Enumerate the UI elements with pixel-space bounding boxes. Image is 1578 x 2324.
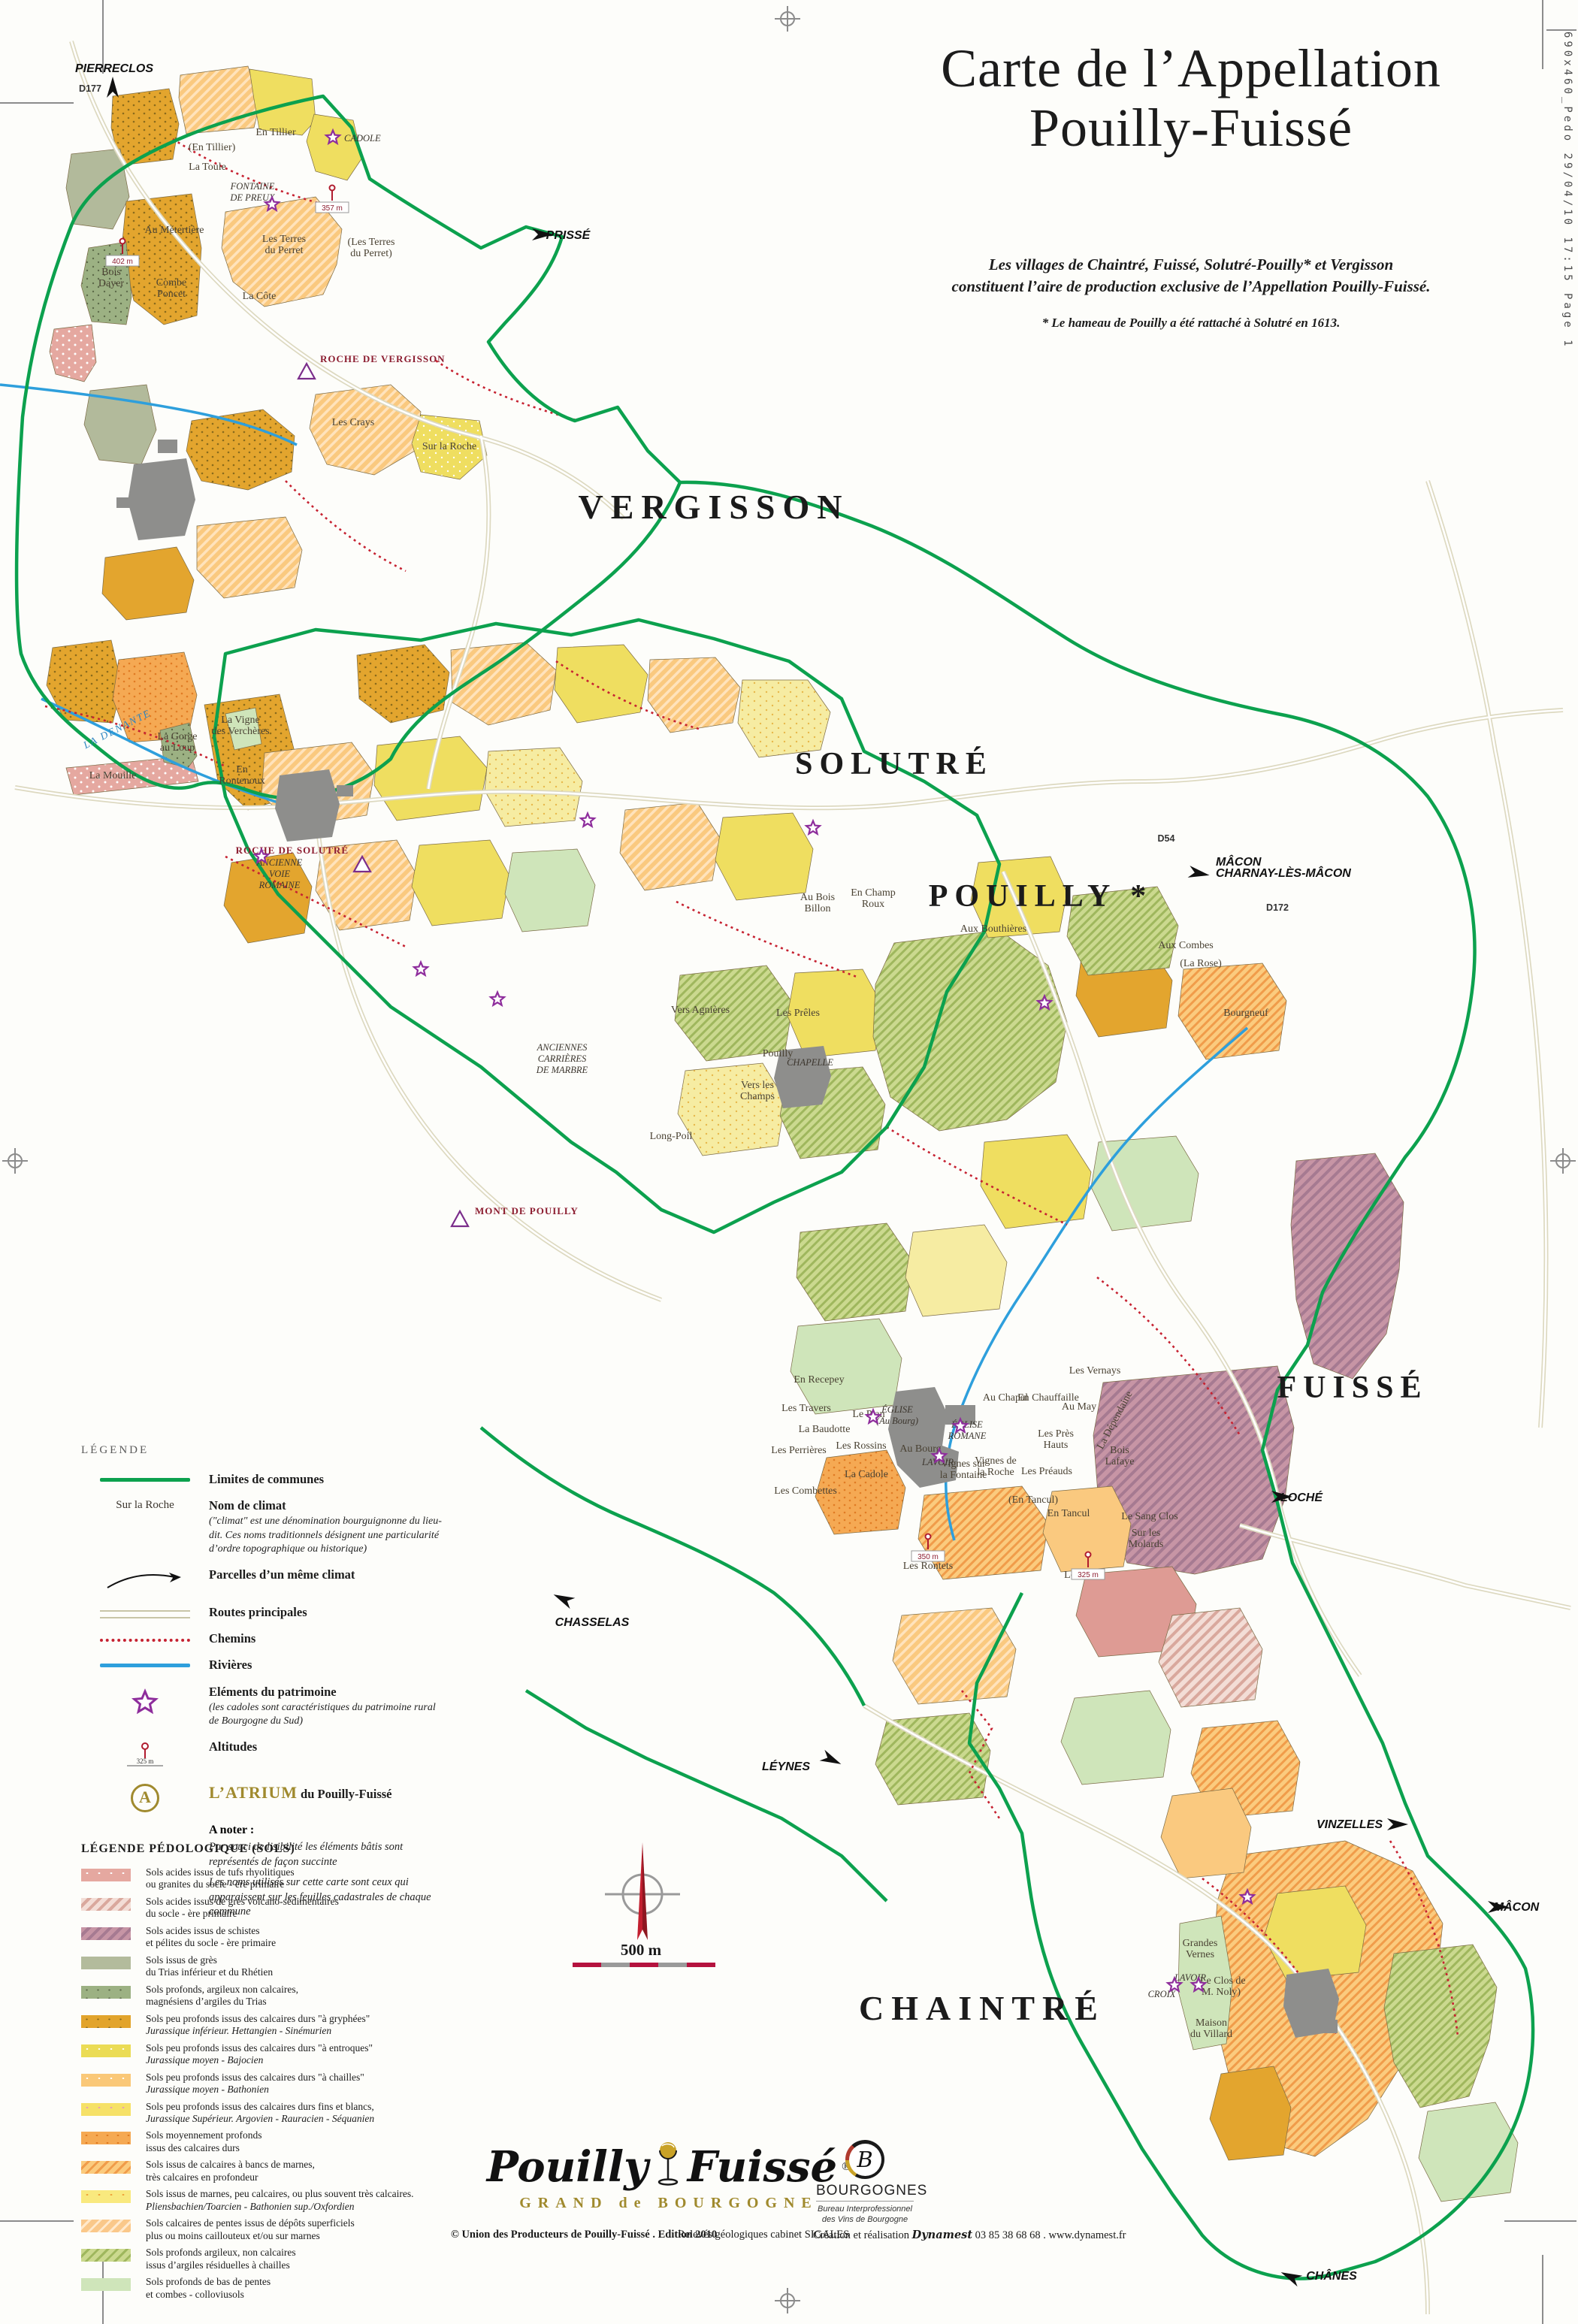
soil-description: Sols issus de calcaires à bancs de marne… [146,2159,315,2183]
altitude-marker: 357 m [316,186,349,213]
soil-description: Sols profonds, argileux non calcaires,ma… [146,1984,298,2008]
soil-swatch [81,1898,131,1911]
soil-legend-item: Sols peu profonds issus des calcaires du… [81,2042,532,2067]
climat-label: Combe [156,277,186,289]
climat-label: Rontenoux [219,775,265,787]
bivb-subtitle: Bureau Interprofessionnel des Vins de Bo… [816,2204,914,2226]
climat-label: Sur les [1132,1528,1161,1539]
soil-legend-item: Sols issus de marnes, peu calcaires, ou … [81,2188,532,2213]
credit-design-suffix: 03 85 38 68 68 . www.dynamest.fr [975,2229,1126,2241]
soil-description: Sols peu profonds issus des calcaires du… [146,2101,374,2126]
soil-swatch [81,1869,131,1881]
pouilly-fuisse-logo: Pouilly Fuissé ® GRAND de BOURGOGNE [511,2140,827,2212]
heritage-label: VOIE [269,869,290,879]
peak-triangle-icon [298,364,315,379]
climat-label: La Cadole [845,1469,888,1480]
peak-label: ROCHE DE SOLUTRÉ [236,845,349,856]
legend-symbol-star [81,1685,209,1729]
climat-label: Bois [101,267,121,278]
rivers [0,385,1247,1540]
soil-swatch [81,2190,131,2203]
destination-label: CHÂNES [1306,2268,1357,2283]
climat-label: des Verchères [211,726,269,737]
heritage-label: ANCIENNES [537,1042,588,1053]
destination-label: CHARNAY-LÈS-MÂCON [1216,866,1351,880]
climat-label: Hauts [1044,1440,1069,1451]
peak-triangle-icon [452,1211,468,1226]
village-label: VERGISSON [579,488,850,526]
pf-logo-subtitle: GRAND de BOURGOGNE [511,2195,827,2212]
heritage-label: ROMAINE [258,880,301,890]
village-label: FUISSÉ [1277,1370,1428,1405]
road-number-label: D172 [1266,902,1289,913]
heritage-label: CADOLE [344,133,381,144]
scale-bar [573,1963,715,1967]
legend-symbol-sample: Sur la Roche [81,1498,209,1556]
road-number-label: D177 [79,83,101,94]
soil-legend-item: Sols peu profonds issus des calcaires du… [81,2013,532,2038]
soil-description: Sols issus de grèsdu Trias inférieur et … [146,1954,273,1979]
soil-legend-item: Sols acides issus de grès volcano-sédime… [81,1896,532,1921]
legend-item: Chemins [81,1631,442,1646]
svg-text:325 m: 325 m [1078,1571,1099,1579]
bivb-ring-icon: B [845,2140,884,2179]
soil-legend-item: Sols profonds, argileux non calcaires,ma… [81,1984,532,2008]
heritage-star-icon [806,821,820,834]
legend-label: Parcelles d’un même climat [209,1567,442,1594]
climat-label: Les Perrières [771,1445,826,1456]
soil-description: Sols issus de marnes, peu calcaires, ou … [146,2188,414,2213]
climat-label: Dayer [98,278,125,289]
climat-label: La Mouille [89,770,137,781]
legend-item: Sur la RocheNom de climat("climat" est u… [81,1498,442,1556]
soil-legend-item: Sols acides issus de tufs rhyolitiquesou… [81,1866,532,1891]
climat-label: En Champ [851,887,896,899]
svg-text:357 m: 357 m [322,204,343,213]
map-sheet: VERGISSONSOLUTRÉPOUILLY *FUISSÉCHAINTRÉP… [0,0,1578,2324]
climat-label: Les Travers [781,1403,831,1414]
direction-arrow-icon [820,1750,844,1769]
page-title-line2: Pouilly-Fuissé [864,98,1518,158]
legend-symbol-altitude: 325 m [81,1739,209,1772]
soil-legend-item: Sols acides issus de schisteset pélites … [81,1925,532,1950]
climat-label: La Vigne [221,715,259,726]
credits-row: © Union des Producteurs de Pouilly-Fuiss… [0,2229,1578,2251]
climat-label: Lafaye [1105,1456,1135,1467]
legend-label: Altitudes [209,1739,442,1772]
bivb-letter: B [849,2144,881,2176]
svg-text:402 m: 402 m [112,258,133,266]
climat-label: Le Sang Clos [1121,1511,1177,1522]
climat-label: Aux Bouthières [960,923,1026,935]
heritage-label: CARRIÈRES [538,1053,587,1064]
climat-label: Au Métertière [145,225,204,236]
destination-label: PIERRECLOS [75,62,153,75]
climat-label: Vers Agnières [671,1005,730,1016]
svg-text:325 m: 325 m [137,1757,154,1765]
climat-label: Au May [1062,1401,1096,1413]
climat-label: M. Noly) [1202,1987,1241,1998]
soil-legend-item: Sols issus de grèsdu Trias inférieur et … [81,1954,532,1979]
legend-label: Rivières [209,1658,442,1673]
heritage-star-icon [581,814,594,827]
climat-label: La Baudotte [799,1424,851,1435]
heritage-label: ROMANE [948,1431,987,1441]
climat-label: En Tillier [255,127,296,138]
soil-swatch [81,1986,131,1999]
legend-item: Eléments du patrimoine(les cadoles sont … [81,1685,442,1729]
page-title-line1: Carte de l’Appellation [864,39,1518,98]
climat-label: (Les Terres [348,237,395,248]
legend-label: Limites de communes [209,1472,442,1487]
legend-symbol-line-green [81,1472,209,1487]
peak-label: MONT DE POUILLY [475,1205,579,1216]
peak-label: ROCHE DE VERGISSON [320,353,446,364]
soil-swatch [81,1927,131,1940]
climat-label: Les Rontets [903,1561,954,1572]
credit-design-brand: Dynamest [912,2229,972,2241]
climat-label: Les Terres [262,234,306,245]
village-label: SOLUTRÉ [795,746,993,781]
climat-label: au Loup [160,742,195,754]
title-block: Carte de l’Appellation Pouilly-Fuissé [864,39,1518,158]
destination-label: VINZELLES [1317,1818,1383,1831]
climat-label: La Gorge [158,731,198,742]
intro-line1: Les villages de Chaintré, Fuissé, Solutr… [887,254,1495,276]
legend-item: AL’ATRIUM du Pouilly-Fuissé [81,1783,442,1812]
climat-label: Champs [740,1091,775,1102]
climat-label: Vers les [741,1080,774,1091]
climat-label: En Tancul [1047,1508,1090,1519]
legend-symbol-dots-red [81,1631,209,1646]
climat-label: Bourgneuf [1223,1008,1268,1019]
climat-label: En [236,764,248,775]
road-number-label: D54 [1158,833,1175,844]
soil-description: Sols peu profonds issus des calcaires du… [146,2013,370,2038]
climat-label: En Recepey [794,1374,844,1386]
soil-swatch [81,2161,131,2174]
legend-label: Routes principales [209,1605,442,1620]
legend-symbol-road [81,1605,209,1620]
climat-label: Roux [862,899,884,910]
climat-label: Les Près [1038,1428,1074,1440]
climat-label: Les Prêles [776,1008,820,1019]
credit-design: Création et réalisation Dynamest 03 85 3… [813,2229,1126,2242]
soil-swatch [81,1957,131,1969]
climat-label: du Perret) [350,248,392,259]
climat-label: La Toule [189,162,226,173]
legend-note-title: A noter : [209,1824,442,1837]
legend-item: Limites de communes [81,1472,442,1487]
climat-label: Les Combettes [774,1485,837,1497]
legend-label: L’ATRIUM du Pouilly-Fuissé [209,1783,442,1812]
direction-arrow-icon [107,77,119,98]
soil-description: Sols moyennement profondsissus des calca… [146,2129,262,2154]
intro-line2: constituent l’aire de production exclusi… [887,276,1495,298]
legend-title: LÉGENDE [81,1444,442,1457]
climat-label: Vignes de [975,1455,1017,1467]
soil-swatch [81,2278,131,2291]
bivb-logo: B BOURGOGNES Bureau Interprofessionnel d… [816,2140,914,2226]
climat-label: du Villard [1190,2029,1232,2040]
legend-symbol-arrow [81,1567,209,1594]
soil-swatch [81,2103,131,2116]
heritage-label: ÉGLISE [881,1404,913,1415]
soil-legend-item: Sols moyennement profondsissus des calca… [81,2129,532,2154]
soil-legend-item: Sols peu profonds issus des calcaires du… [81,2072,532,2096]
heritage-label: DE MARBRE [536,1065,588,1075]
legend-item: 325 mAltitudes [81,1739,442,1772]
soil-description: Sols acides issus de grès volcano-sédime… [146,1896,339,1921]
soil-swatch [81,2015,131,2028]
soil-swatch [81,2074,131,2087]
village-label: POUILLY * [929,879,1153,914]
destination-label: LÉYNES [762,1759,810,1773]
direction-arrow-icon [551,1589,575,1609]
legend-rows: Limites de communesSur la RocheNom de cl… [81,1472,442,1812]
soil-description: Sols profonds de bas de penteset combes … [146,2276,271,2301]
direction-arrow-icon [1387,1818,1408,1830]
climat-label: Vernes [1186,1949,1214,1960]
soil-legend-title: LÉGENDE PÉDOLOGIQUE (SOLS) [81,1842,532,1856]
heritage-label: (Au Bourg) [876,1416,918,1426]
heritage-label: FONTAINE [230,181,275,192]
climat-label: du Perret [265,245,304,256]
soil-legend-item: Sols peu profonds issus des calcaires du… [81,2101,532,2126]
climat-label: Au Bois [800,892,835,903]
climat-label: (La Rose) [1180,958,1222,969]
pf-logo-word2: Fuissé [688,2142,837,2192]
climat-label: Les Crays [332,417,374,428]
wine-glass-icon [653,2140,683,2193]
climat-label: Long-Poil [650,1131,693,1142]
climat-label: Poncet [157,289,186,300]
climat-label: Maison [1196,2017,1227,2029]
bivb-sub2: des Vins de Bourgogne [816,2214,914,2225]
legend-label: Chemins [209,1631,442,1646]
bivb-sub1: Bureau Interprofessionnel [816,2204,914,2214]
legend-label: Nom de climat("climat" est une dénominat… [209,1498,442,1556]
legend-label: Eléments du patrimoine(les cadoles sont … [209,1685,442,1729]
village-label: CHAINTRÉ [859,1989,1105,2027]
soil-swatch [81,2044,131,2057]
legend-item: Rivières [81,1658,442,1673]
legend-symbol-atrium: A [81,1783,209,1812]
heritage-label: LAVOIR [1174,1972,1206,1983]
direction-arrow-icon [1188,866,1211,881]
climat-label: Les Vernays [1069,1365,1121,1377]
climat-label: Les Préauds [1021,1466,1072,1477]
climat-label: (En Tancul) [1008,1494,1058,1506]
climat-label: Les Rossins [836,1440,886,1452]
legend-symbol-line-blue [81,1658,209,1673]
pf-logo-word1: Pouilly [487,2142,648,2192]
heritage-label: CHAPELLE [787,1057,833,1068]
legend-item: Routes principales [81,1605,442,1620]
climat-label: (En Tillier) [189,142,236,153]
climat-label: Billon [804,903,830,914]
intro-text: Les villages de Chaintré, Fuissé, Solutr… [887,254,1495,298]
destination-label: PRISSÉ [546,228,591,242]
soil-description: Sols acides issus de tufs rhyolitiquesou… [146,1866,295,1891]
climat-label: La Côte [243,291,277,302]
soil-legend-item: Sols issus de calcaires à bancs de marne… [81,2159,532,2183]
intro-footnote: * Le hameau de Pouilly a été rattaché à … [887,316,1495,331]
legend-item: Parcelles d’un même climat [81,1567,442,1594]
climat-label: la Roche [977,1467,1014,1478]
credit-design-prefix: Création et réalisation [813,2229,909,2241]
climat-label: Aux Combes [1158,940,1214,951]
compass-rose [605,1842,680,1940]
soil-description: Sols peu profonds issus des calcaires du… [146,2042,373,2067]
scale-label: 500 m [621,1941,662,1959]
soil-description: Sols peu profonds issus des calcaires du… [146,2072,364,2096]
soil-swatch [81,2132,131,2144]
print-annotation: 690x460_Pedo 29/04/10 17:15 Page 1 [1561,32,1573,349]
soil-description: Sols acides issus de schisteset pélites … [146,1925,276,1950]
heritage-star-icon [414,963,428,975]
climat-label: Bois [1110,1445,1129,1456]
soil-legend-item: Sols profonds de bas de penteset combes … [81,2276,532,2301]
climat-label: Sur la Roche [422,441,476,452]
svg-text:350 m: 350 m [917,1553,939,1561]
destination-label: CHASSELAS [555,1616,630,1629]
climat-label: Grandes [1183,1938,1218,1949]
climat-label: Molards [1129,1539,1164,1550]
bivb-name: BOURGOGNES [816,2183,914,2202]
heritage-star-icon [491,993,504,1005]
